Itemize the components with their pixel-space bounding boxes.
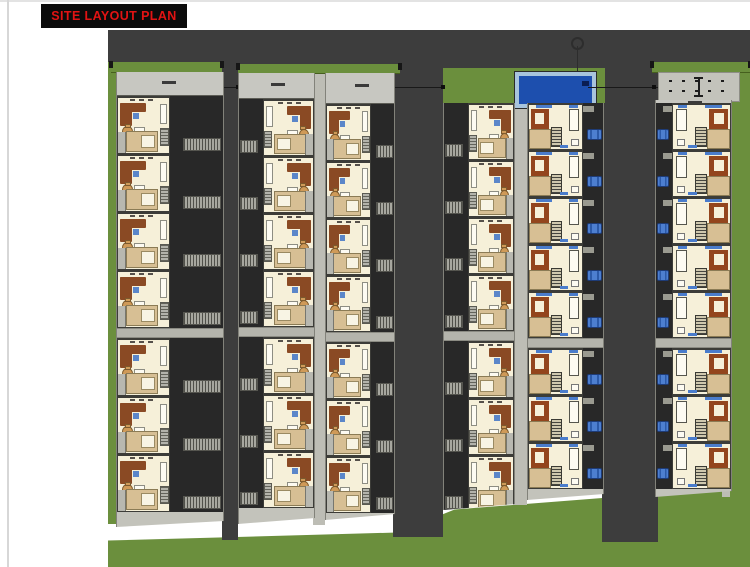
sofa-pillow: [494, 234, 499, 240]
rear-stairs: [183, 254, 221, 267]
stairs: [695, 174, 707, 194]
unit-label-text: [479, 344, 502, 346]
bed: [569, 250, 579, 272]
bed: [277, 490, 291, 502]
house-unit-plan: [656, 244, 731, 291]
wardrobe: [160, 162, 167, 183]
dimension-line: [588, 87, 658, 88]
house-unit-plan: [528, 103, 603, 150]
sofa-pillow: [340, 473, 345, 479]
upper-floor-block: [239, 99, 263, 156]
house-unit-plan: [117, 454, 223, 512]
bath-fixture: [571, 139, 578, 146]
house-unit-plan: [239, 270, 314, 327]
upper-floor-block: [656, 103, 673, 150]
rear-stairs: [183, 496, 221, 509]
wardrobe: [160, 278, 167, 299]
parked-car: [587, 176, 602, 187]
upper-floor-block: [239, 337, 263, 394]
sofa-set: [531, 401, 549, 422]
bedroom: [333, 377, 361, 397]
sofa: [120, 161, 132, 184]
balcony: [583, 106, 594, 113]
sofa: [120, 403, 132, 426]
unit-label-text: [337, 345, 359, 347]
unit-label-text: [276, 102, 301, 104]
sofa-set: [709, 250, 728, 271]
sofa-pillow: [494, 472, 499, 478]
unit-label-text: [276, 397, 301, 399]
rear-stairs: [183, 138, 221, 151]
unit-floorplan: [673, 244, 732, 291]
house-unit-plan: [117, 212, 223, 270]
unit-floorplan: [673, 103, 732, 150]
upper-floor-block: [583, 197, 603, 244]
stairs: [695, 127, 707, 147]
window: [560, 145, 568, 148]
bedroom: [333, 434, 361, 454]
sofa-pillow: [292, 354, 298, 360]
sofa-set: [709, 354, 728, 375]
stairs: [264, 131, 272, 148]
upper-floor-block: [656, 291, 673, 338]
sofa-set: [709, 448, 728, 469]
road-5-6: [602, 66, 658, 542]
stairs: [695, 419, 707, 439]
patio: [118, 374, 126, 395]
stairs: [160, 128, 169, 145]
sofa-set: [709, 156, 728, 177]
bed: [141, 135, 156, 147]
strip-footer: [239, 508, 314, 524]
unit-floorplan: [528, 244, 583, 291]
patio: [305, 134, 313, 155]
patio: [118, 306, 126, 327]
house-unit-plan: [444, 274, 514, 331]
wardrobe: [362, 111, 368, 131]
bed: [277, 376, 291, 388]
bed: [569, 448, 579, 470]
sofa: [501, 405, 511, 428]
upper-floor-block: [656, 395, 673, 442]
stairs: [160, 428, 169, 445]
house-unit-plan: [239, 451, 314, 508]
wardrobe: [160, 346, 167, 367]
bath-fixture: [677, 139, 685, 146]
unit-label-text: [337, 278, 359, 280]
bedroom: [478, 376, 507, 396]
bedroom: [707, 176, 730, 196]
swimming-pool: [515, 72, 596, 108]
unit-floorplan: [263, 213, 314, 270]
house-unit-plan: [528, 197, 603, 244]
upper-floor-block: [444, 160, 468, 217]
unit-label-text: [479, 106, 502, 108]
wardrobe: [362, 282, 368, 302]
stairs: [264, 188, 272, 205]
sofa-set: [531, 156, 549, 177]
upper-floor-block: [583, 348, 603, 395]
window: [569, 152, 577, 155]
strip-footer: [326, 513, 394, 520]
window: [569, 350, 577, 353]
bed: [676, 156, 686, 178]
wardrobe: [266, 277, 273, 297]
sofa-pillow: [494, 291, 499, 297]
bedroom: [707, 468, 730, 488]
sofa-pillow: [133, 355, 139, 361]
house-unit-plan: [326, 342, 394, 399]
sofa-pillow: [340, 359, 345, 365]
grass-band-strip2-3: [238, 64, 400, 74]
patio: [327, 434, 334, 455]
rear-stairs: [240, 254, 258, 267]
house-unit-plan: [528, 395, 603, 442]
patio: [118, 490, 126, 511]
patio: [506, 252, 513, 273]
rear-stairs: [240, 378, 258, 391]
rear-stairs: [445, 496, 463, 509]
patio: [327, 196, 334, 217]
sports-court: [658, 72, 740, 102]
bed: [569, 203, 579, 225]
rear-stairs: [445, 201, 463, 214]
rear-stairs: [240, 311, 258, 324]
bed: [277, 252, 291, 264]
upper-floor-block: [170, 154, 223, 212]
window: [560, 239, 568, 242]
parked-car: [657, 468, 669, 479]
patio: [118, 132, 126, 153]
court-net-line: [698, 78, 700, 96]
rear-stairs: [183, 380, 221, 393]
bath-fixture: [677, 280, 685, 287]
patio: [327, 253, 334, 274]
window: [560, 390, 568, 393]
parked-car: [657, 223, 669, 234]
unit-floorplan: [468, 103, 514, 160]
stairs: [695, 268, 707, 288]
dimension-line: [393, 87, 443, 88]
bedroom: [126, 131, 159, 152]
house-unit-plan: [656, 395, 731, 442]
window: [560, 192, 568, 195]
house-unit-plan: [326, 275, 394, 332]
bedroom: [333, 491, 361, 511]
unit-floorplan: [528, 291, 583, 338]
unit-floorplan: [528, 442, 583, 489]
building-strip-4: [443, 103, 515, 510]
bed: [346, 314, 359, 326]
sofa-pillow: [340, 178, 345, 184]
wardrobe: [266, 344, 273, 364]
balcony: [663, 200, 672, 207]
window: [678, 199, 687, 202]
bath-fixture: [571, 280, 578, 287]
unit-floorplan: [528, 348, 583, 395]
bedroom: [707, 129, 730, 149]
unit-floorplan: [263, 99, 314, 156]
upper-floor-block: [444, 103, 468, 160]
unit-floorplan: [326, 399, 371, 456]
window: [560, 286, 568, 289]
unit-floorplan: [263, 270, 314, 327]
stairs: [695, 466, 707, 486]
patio: [506, 433, 513, 454]
balcony: [583, 398, 594, 405]
sofa-pillow: [494, 415, 499, 421]
upper-floor-block: [239, 394, 263, 451]
stairs: [362, 431, 370, 448]
sofa-set: [531, 354, 549, 375]
sofa: [329, 282, 339, 305]
bedroom: [333, 253, 361, 273]
wardrobe: [160, 404, 167, 425]
unit-label-text: [479, 401, 502, 403]
sofa-pillow: [133, 113, 139, 119]
bed: [346, 495, 359, 507]
rear-stairs: [376, 316, 394, 329]
pool-garden: [443, 68, 605, 103]
sofa: [300, 106, 311, 129]
parked-car: [587, 129, 602, 140]
bedroom: [274, 134, 305, 154]
stairs: [160, 370, 169, 387]
upper-floor-block: [583, 291, 603, 338]
upper-floor-block: [656, 197, 673, 244]
rear-stairs: [445, 144, 463, 157]
unit-label-text: [130, 457, 157, 459]
unit-label-text: [130, 399, 157, 401]
parked-car: [657, 270, 669, 281]
house-unit-plan: [117, 396, 223, 454]
sofa-set: [531, 448, 549, 469]
house-unit-plan: [326, 456, 394, 513]
unit-label-text: [337, 221, 359, 223]
wardrobe: [160, 220, 167, 241]
upper-floor-block: [583, 395, 603, 442]
upper-floor-block: [583, 442, 603, 489]
bedroom: [707, 421, 730, 441]
unit-label-text: [479, 220, 502, 222]
wardrobe: [471, 348, 477, 368]
bed: [480, 494, 493, 506]
balcony: [583, 445, 594, 452]
bed: [346, 257, 359, 269]
stairs: [160, 186, 169, 203]
patio: [305, 305, 313, 326]
house-unit-plan: [656, 150, 731, 197]
upper-floor-block: [371, 218, 394, 275]
walkway-4-5: [513, 103, 527, 505]
sofa: [501, 281, 511, 304]
unit-label-text: [276, 159, 301, 161]
house-unit-plan: [117, 338, 223, 396]
patio: [506, 195, 513, 216]
bed: [141, 435, 156, 447]
upper-floor-block: [170, 270, 223, 328]
sofa-set: [709, 203, 728, 224]
wardrobe: [362, 406, 368, 426]
sofa: [501, 110, 511, 133]
patio: [506, 138, 513, 159]
window: [688, 286, 696, 289]
balcony: [583, 153, 594, 160]
unit-floorplan: [673, 291, 732, 338]
unit-floorplan: [263, 337, 314, 394]
bed: [569, 297, 579, 319]
upper-floor-block: [170, 454, 223, 512]
bedroom: [333, 196, 361, 216]
bedroom: [529, 270, 551, 290]
survey-marker-icon: [571, 37, 584, 50]
stairs: [264, 245, 272, 262]
unit-floorplan: [326, 104, 371, 161]
sofa-set: [531, 250, 549, 271]
unit-label-text: [276, 454, 301, 456]
sofa: [329, 168, 339, 191]
wardrobe: [471, 110, 477, 130]
upper-floor-block: [371, 161, 394, 218]
bedroom: [126, 489, 159, 510]
rear-stairs: [445, 258, 463, 271]
wardrobe: [266, 163, 273, 183]
sofa-pillow: [340, 292, 345, 298]
bath-fixture: [571, 384, 578, 391]
bath-fixture: [677, 431, 685, 438]
sofa-pillow: [133, 171, 139, 177]
bath-fixture: [571, 478, 578, 485]
bed: [480, 142, 493, 154]
patio: [305, 248, 313, 269]
parked-car: [657, 176, 669, 187]
block-separator: [239, 327, 314, 337]
house-unit-plan: [326, 104, 394, 161]
unit-label-text: [130, 273, 157, 275]
bedroom: [478, 138, 507, 158]
entry-court: [326, 73, 394, 104]
stairs: [695, 221, 707, 241]
bedroom: [274, 191, 305, 211]
stairs: [362, 488, 370, 505]
court-net-cap: [694, 95, 703, 97]
stairs: [469, 135, 477, 152]
bed: [141, 309, 156, 321]
house-unit-plan: [117, 270, 223, 328]
unit-floorplan: [117, 154, 170, 212]
upper-floor-block: [170, 212, 223, 270]
house-unit-plan: [444, 160, 514, 217]
window: [569, 397, 577, 400]
bedroom: [529, 374, 551, 394]
stairs: [695, 315, 707, 335]
wardrobe: [471, 281, 477, 301]
upper-floor-block: [444, 398, 468, 455]
rear-stairs: [445, 315, 463, 328]
wardrobe: [160, 104, 167, 125]
window: [569, 293, 577, 296]
sofa: [329, 225, 339, 248]
window: [688, 437, 696, 440]
unit-floorplan: [326, 218, 371, 275]
unit-floorplan: [117, 212, 170, 270]
bed: [569, 156, 579, 178]
bed: [676, 354, 686, 376]
stairs: [469, 373, 477, 390]
balcony: [663, 106, 672, 113]
sofa-pillow: [292, 230, 298, 236]
rear-stairs: [183, 438, 221, 451]
building-strip-6: [655, 100, 732, 497]
window: [569, 105, 577, 108]
sofa: [120, 219, 132, 242]
house-unit-plan: [239, 394, 314, 451]
window: [569, 199, 577, 202]
bed: [676, 203, 686, 225]
bedroom: [529, 468, 551, 488]
house-unit-plan: [239, 99, 314, 156]
upper-floor-block: [444, 274, 468, 331]
window: [678, 444, 687, 447]
parked-car: [657, 129, 669, 140]
upper-floor-block: [656, 244, 673, 291]
bedroom: [274, 305, 305, 325]
pool-ladder-icon: [582, 81, 589, 86]
house-unit-plan: [656, 442, 731, 489]
unit-floorplan: [468, 274, 514, 331]
bed: [141, 193, 156, 205]
wardrobe: [266, 106, 273, 126]
bed: [569, 401, 579, 423]
bedroom: [529, 176, 551, 196]
sofa-pillow: [133, 229, 139, 235]
bath-fixture: [571, 431, 578, 438]
unit-label-text: [276, 340, 301, 342]
bedroom: [333, 139, 361, 159]
unit-floorplan: [326, 161, 371, 218]
bed: [569, 109, 579, 131]
patio: [305, 486, 313, 507]
wardrobe: [471, 462, 477, 482]
bedroom: [707, 374, 730, 394]
bed: [141, 377, 156, 389]
rear-stairs: [240, 140, 258, 153]
rear-stairs: [376, 383, 394, 396]
unit-floorplan: [263, 394, 314, 451]
sofa-pillow: [494, 177, 499, 183]
unit-label-text: [130, 341, 157, 343]
patio: [118, 190, 126, 211]
house-unit-plan: [444, 455, 514, 512]
window: [569, 444, 577, 447]
unit-floorplan: [117, 396, 170, 454]
bed: [480, 199, 493, 211]
wardrobe: [266, 220, 273, 240]
patio: [327, 139, 334, 160]
block-separator: [326, 332, 394, 342]
balcony: [663, 247, 672, 254]
sofa-pillow: [340, 416, 345, 422]
bedroom: [126, 431, 159, 452]
upper-floor-block: [656, 442, 673, 489]
wardrobe: [362, 463, 368, 483]
parked-car: [587, 421, 602, 432]
sofa-set: [531, 297, 549, 318]
house-unit-plan: [117, 154, 223, 212]
sofa-set: [709, 401, 728, 422]
sofa: [329, 349, 339, 372]
window: [678, 350, 687, 353]
